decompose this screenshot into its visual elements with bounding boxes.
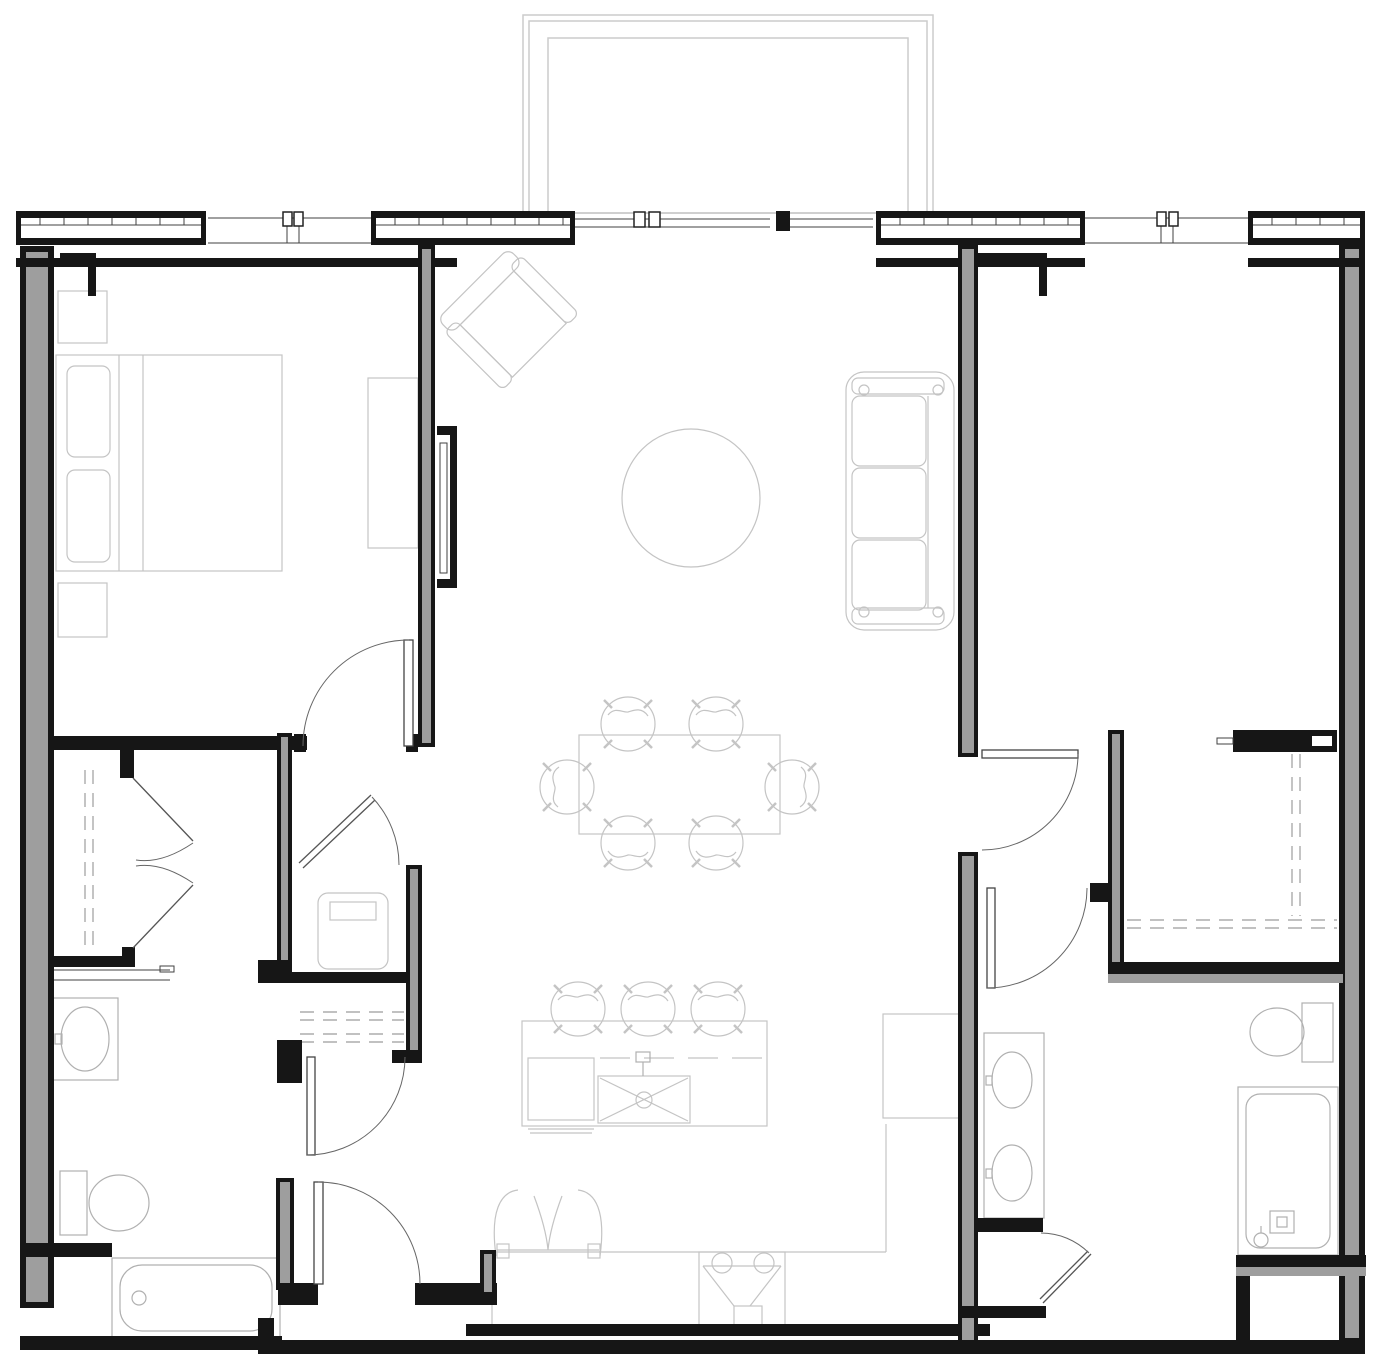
tub-mixer-inner xyxy=(1277,1217,1287,1227)
sofa-outline xyxy=(846,372,954,630)
accent-chair-foot xyxy=(588,1244,600,1258)
sofa-cushion xyxy=(852,540,926,610)
door-swing-right-bath xyxy=(1041,1233,1089,1253)
bifold-closet-door xyxy=(133,885,193,948)
dishwasher xyxy=(528,1058,594,1120)
window-frame xyxy=(201,211,206,245)
window-mullion xyxy=(1157,212,1166,226)
balcony-outline-mid xyxy=(529,21,927,213)
toilet-left-bowl xyxy=(89,1175,149,1231)
nightstand xyxy=(58,583,107,637)
wall-stub xyxy=(292,736,307,750)
door-leaf-left-bedroom xyxy=(404,640,413,746)
tub-handle xyxy=(1254,1233,1268,1247)
window-frame xyxy=(371,211,575,218)
alcove-wall xyxy=(1236,1276,1250,1342)
faucet-right-bath xyxy=(986,1076,992,1085)
vanity-right-bath xyxy=(984,1033,1044,1218)
bathtub-right xyxy=(1238,1087,1338,1255)
window-frame xyxy=(1080,211,1085,245)
closet-right-bottom-core xyxy=(1108,974,1343,983)
window-frame xyxy=(1360,211,1365,245)
wall-stub xyxy=(1090,883,1110,902)
dining-chair xyxy=(601,816,655,870)
window-frame xyxy=(1248,238,1365,245)
accent-chair-cushion xyxy=(548,1196,562,1250)
under-door-wall xyxy=(958,1306,1046,1318)
tub-foot-wall xyxy=(1236,1255,1366,1267)
range-burner xyxy=(754,1253,774,1273)
tv-niche xyxy=(450,426,457,588)
door-swing-left-bedroom xyxy=(303,640,409,746)
entry-step xyxy=(258,1318,274,1342)
window-frame xyxy=(16,211,206,218)
window-frame xyxy=(1248,211,1365,218)
tub-mixer xyxy=(1270,1211,1294,1233)
window-frame xyxy=(371,211,376,245)
armchair-living xyxy=(435,246,579,390)
sofa-cushion xyxy=(852,396,926,466)
closet-bottom-wall xyxy=(54,956,135,967)
door-leaf-right-bath xyxy=(1040,1251,1088,1299)
door-leaf-laundry xyxy=(299,795,371,863)
window-frame xyxy=(16,211,21,245)
toilet-right-bowl xyxy=(1250,1008,1304,1056)
two-bedroom-apartment-floor-plan xyxy=(0,0,1386,1360)
bifold-closet-door xyxy=(133,778,193,841)
bathtub-right-inner xyxy=(1246,1094,1330,1248)
tv-screen xyxy=(440,443,447,573)
wall-stub xyxy=(88,253,96,296)
window-frame xyxy=(1248,211,1253,245)
door-swing-laundry xyxy=(372,797,399,865)
door-swing-left-bath xyxy=(307,1057,405,1155)
window-band xyxy=(16,211,206,245)
bar-stool xyxy=(551,982,605,1036)
door-jamb xyxy=(277,1040,302,1083)
balcony-outline-inner xyxy=(548,38,908,213)
door-swing-entry xyxy=(318,1182,420,1284)
kitchen-bottom-wall xyxy=(466,1324,990,1336)
sofa-armrest xyxy=(852,378,944,394)
floor-plan-page xyxy=(0,0,1386,1360)
window-band xyxy=(1248,211,1365,245)
window-frame xyxy=(876,238,1085,245)
range-burner xyxy=(712,1253,732,1273)
sink-right-bath xyxy=(992,1052,1032,1108)
door-swing-right-bedroom xyxy=(982,754,1078,850)
wall-living-right-upper-core xyxy=(962,249,974,753)
door-leaf-right-bath xyxy=(1043,1254,1091,1303)
dining-chair xyxy=(540,760,594,814)
wall-living-right-lower-core xyxy=(962,856,974,1340)
hall-mid-wall-core xyxy=(281,737,288,979)
dining-chair xyxy=(689,816,743,870)
toilet-right-tank xyxy=(1302,1003,1333,1062)
closet-right-bottom-wall xyxy=(1108,962,1343,974)
bathtub-left xyxy=(112,1258,280,1338)
sink-right-bath xyxy=(992,1145,1032,1201)
top-wall-segment xyxy=(1248,258,1365,267)
wall-stub xyxy=(1039,253,1047,296)
refrigerator xyxy=(883,1014,963,1118)
bed-left-pillow xyxy=(67,366,110,457)
wall-left-bedroom-bottom xyxy=(54,736,294,750)
accent-chair-cushion xyxy=(534,1196,548,1250)
sink-left-bath xyxy=(61,1007,109,1071)
hall-shelf-bracket xyxy=(160,966,174,972)
bath-right-stub xyxy=(975,1218,1043,1232)
toilet-left-tank xyxy=(60,1171,87,1235)
dining-table xyxy=(579,735,780,834)
dining-chair xyxy=(765,760,819,814)
door-leaf-right-bedroom xyxy=(982,750,1078,758)
bathtub-left-drain xyxy=(132,1291,146,1305)
window-mullion xyxy=(283,212,292,226)
dining-chair xyxy=(601,697,655,751)
kitchen-island xyxy=(522,1021,767,1126)
washer-control-panel xyxy=(330,902,376,920)
door-leaf-right-bath-hall xyxy=(987,888,995,988)
balcony-slider-mullion xyxy=(649,212,660,227)
tub-bottom-wall xyxy=(20,1336,282,1350)
bar-stool xyxy=(691,982,745,1036)
washer-dryer xyxy=(318,893,388,969)
range-hood-duct xyxy=(734,1306,762,1326)
nightstand xyxy=(58,291,107,343)
window-frame xyxy=(876,211,1085,218)
bifold-closet-door-swing xyxy=(136,843,193,861)
door-leaf-entry xyxy=(314,1182,323,1284)
closet-stub xyxy=(122,947,135,956)
sofa-cushion xyxy=(852,468,926,538)
exterior-wall-bottom xyxy=(258,1340,1365,1354)
accent-chair-arm xyxy=(494,1190,518,1256)
bifold-closet-door-swing xyxy=(136,865,193,883)
island-faucet xyxy=(636,1052,650,1062)
tub-deck-wall xyxy=(20,1243,112,1257)
wall-left-bedroom-core xyxy=(422,249,431,743)
window-band xyxy=(876,211,1085,245)
window-frame xyxy=(371,238,575,245)
bar-stool xyxy=(621,982,675,1036)
bathtub-left-inner xyxy=(120,1265,272,1331)
window-band xyxy=(371,211,575,245)
bed-left-pillow xyxy=(67,470,110,562)
linen-closet-top-wall xyxy=(292,972,418,983)
closet-right-left-core xyxy=(1112,734,1120,966)
exterior-wall-right-core xyxy=(1345,249,1359,1338)
door-leaf-left-bath xyxy=(307,1057,315,1155)
window-frame xyxy=(570,211,575,245)
accent-chair-foot xyxy=(497,1244,509,1258)
kitchen-wall-stub-core xyxy=(484,1254,492,1292)
accent-chair-arm xyxy=(578,1190,602,1256)
tub-right-wall-core xyxy=(280,1182,290,1286)
door-leaf-laundry xyxy=(303,800,375,868)
closet-stub xyxy=(120,748,134,778)
bed-left-outline xyxy=(56,355,282,571)
closet-rod-handle xyxy=(1217,738,1233,744)
faucet-right-bath xyxy=(986,1169,992,1178)
window-frame xyxy=(16,238,206,245)
balcony-outline-outer xyxy=(523,15,933,213)
wall-stub xyxy=(977,253,1047,261)
door-jamb xyxy=(392,1050,420,1063)
linen-closet-right-core xyxy=(410,869,418,1059)
closet-rod-slot xyxy=(1312,736,1332,746)
exterior-wall-left-core xyxy=(26,252,48,1302)
tub-foot-wall-core xyxy=(1236,1267,1366,1276)
door-swing-right-bath-hall xyxy=(987,888,1087,988)
dresser-left-bedroom xyxy=(368,378,418,548)
wall-junction xyxy=(258,960,292,983)
slider-pier xyxy=(776,211,790,231)
window-mullion xyxy=(294,212,303,226)
window-frame xyxy=(876,211,881,245)
window-mullion xyxy=(1169,212,1178,226)
area-rug-round xyxy=(622,429,760,567)
balcony-slider-mullion xyxy=(634,212,645,227)
entry-wall xyxy=(278,1283,318,1305)
dining-chair xyxy=(689,697,743,751)
range-hood-side xyxy=(750,1266,781,1306)
